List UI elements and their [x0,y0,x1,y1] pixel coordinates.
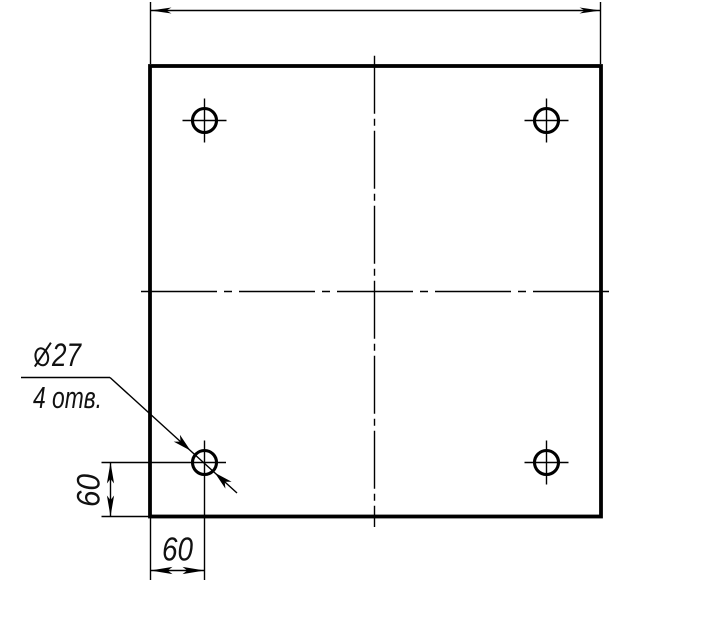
svg-text:27: 27 [51,337,82,373]
svg-text:4 отв.: 4 отв. [33,380,102,415]
svg-text:60: 60 [162,531,194,568]
svg-text:60: 60 [71,474,107,507]
